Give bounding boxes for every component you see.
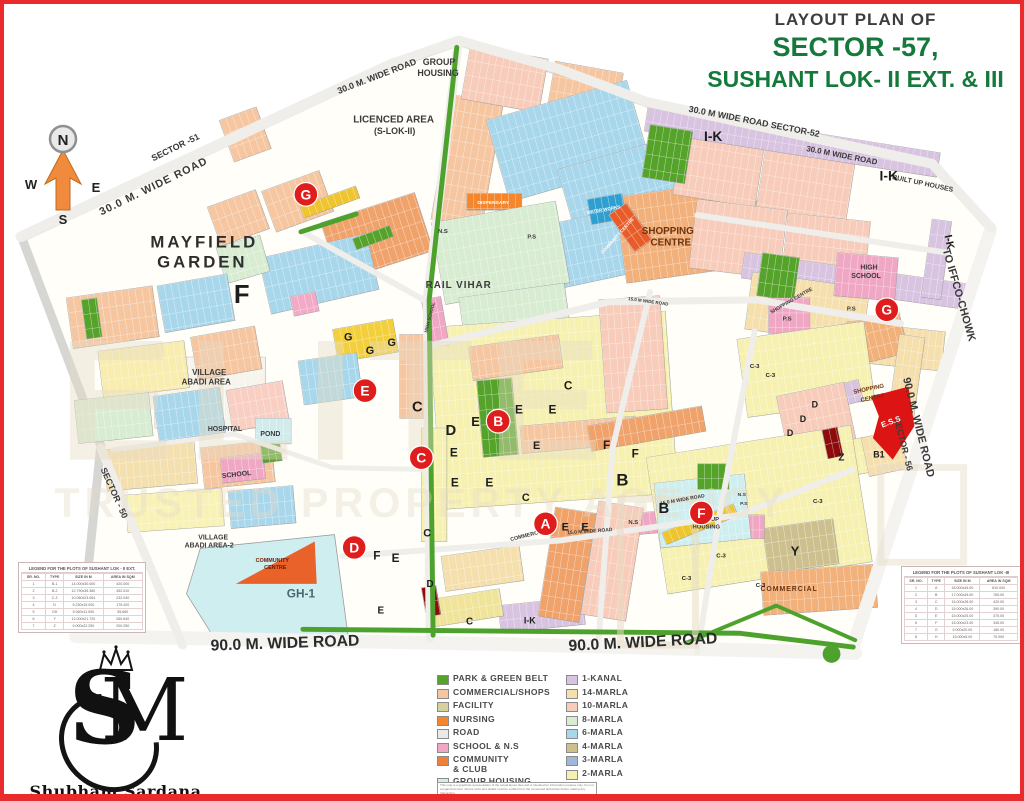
table-row: 7Z9.000x22.250200.250 xyxy=(22,623,143,630)
legend-label: COMMUNITY & CLUB xyxy=(453,755,509,775)
legend-item: 8-MARLA xyxy=(566,715,628,726)
table-cell: G xyxy=(928,627,945,634)
table-cell: GH xyxy=(46,609,64,616)
table-row: 6Y12.000x21.720260.640 xyxy=(22,616,143,623)
watermark-text: ELITE xyxy=(58,304,616,497)
block-letter: I-K xyxy=(704,129,722,144)
title-kicker: LAYOUT PLAN OF xyxy=(703,10,1008,30)
legend-swatch xyxy=(566,716,578,726)
block-letter: C xyxy=(466,616,473,627)
table-cell: 12.790x35.380 xyxy=(64,588,103,595)
table-row: 4D15.000x26.00390.00 xyxy=(905,606,1018,613)
title-sector: SECTOR -57, xyxy=(703,32,1008,63)
map-label: ABADI AREA-2 xyxy=(185,542,234,549)
table-cell: 14.000x30.000 xyxy=(64,581,103,588)
table-cell: 6 xyxy=(905,620,928,627)
legend-label: ROAD xyxy=(453,728,480,738)
table-cell: 10.060x23.064 xyxy=(64,595,103,602)
section-marker-g: G xyxy=(294,183,318,207)
map-label: COMMERCIAL xyxy=(760,586,817,593)
table-cell: 420.00 xyxy=(980,599,1018,606)
monogram: S M xyxy=(41,670,191,782)
section-marker-a: A xyxy=(534,512,558,536)
table-cell: 4 xyxy=(22,602,46,609)
table-cell: 9.000x22.250 xyxy=(64,623,103,630)
block-letter: C xyxy=(564,379,573,393)
map-label: HIGH xyxy=(860,264,877,271)
legend-swatch xyxy=(437,689,449,699)
legend-label: 10-MARLA xyxy=(582,701,628,711)
legend-swatch xyxy=(437,729,449,739)
table-row: 5E15.000x25.00375.00 xyxy=(905,613,1018,620)
group-housing-gh1-area xyxy=(187,535,349,642)
table-cell: 2 xyxy=(905,592,928,599)
table-row: 2B-212.790x35.380452.510 xyxy=(22,588,143,595)
section-marker-c: C xyxy=(409,446,433,470)
block-letter: C-3 xyxy=(766,373,776,379)
legend-item: 2-MARLA xyxy=(566,769,628,780)
table-cell: 75.000 xyxy=(980,634,1018,641)
block-letter: D xyxy=(446,423,457,439)
map-label: DISPENSARY xyxy=(477,200,510,206)
legend-label: 14-MARLA xyxy=(582,688,628,698)
legend-item: COMMUNITY & CLUB xyxy=(437,755,550,775)
svg-text:D: D xyxy=(349,540,359,555)
table-row: 7G9.000x20.00180.00 xyxy=(905,627,1018,634)
block-letter: E xyxy=(548,402,556,416)
table-header-cell: AREA IN SQM xyxy=(103,574,142,581)
plot-table-lok3: LEGEND FOR THE PLOTS OF SUSHANT LOK -III… xyxy=(901,566,1021,644)
table-cell: 12.000x21.720 xyxy=(64,616,103,623)
legend-swatch xyxy=(566,770,578,780)
map-label: HOSPITAL xyxy=(208,426,242,433)
legend-label: 8-MARLA xyxy=(582,715,623,725)
block-letter: C-3 xyxy=(682,576,692,582)
map-label: (S-LOK-II) xyxy=(374,126,415,136)
table-cell: B xyxy=(928,592,945,599)
legend-item: FACILITY xyxy=(437,701,550,712)
legend-label: PARK & GREEN BELT xyxy=(453,674,548,684)
block-letter: E xyxy=(533,440,540,452)
table-cell: E xyxy=(928,613,945,620)
block-letter: F xyxy=(373,548,380,562)
table-row: 6F15.000x23.00345.00 xyxy=(905,620,1018,627)
block-letter: E xyxy=(450,446,458,460)
table-cell: A xyxy=(928,585,945,592)
table-cell: 1 xyxy=(905,585,928,592)
svg-text:G: G xyxy=(881,303,892,318)
table-cell: 15.000x5.00 xyxy=(945,634,980,641)
table-header-cell: SIZE IN M xyxy=(64,574,103,581)
map-label: ABADI AREA xyxy=(182,378,231,387)
table-header-cell: SIZE IN M xyxy=(945,578,980,585)
legend-label: 3-MARLA xyxy=(582,755,623,765)
compass-s: S xyxy=(59,212,68,226)
table-cell: 420.000 xyxy=(103,581,142,588)
block-letter: E xyxy=(581,522,588,534)
legend-swatch xyxy=(566,743,578,753)
legend-swatch xyxy=(437,675,449,685)
table-cell: 180.00 xyxy=(980,627,1018,634)
map-label: P.S xyxy=(527,235,536,241)
legend-label: SCHOOL & N.S xyxy=(453,742,519,752)
legend-swatch xyxy=(566,729,578,739)
svg-text:G: G xyxy=(301,187,312,202)
legend-swatch xyxy=(566,702,578,712)
disclaimer-note: This map is a graphical representation o… xyxy=(437,782,597,798)
block-letter: E xyxy=(515,402,523,416)
table-cell: 765.00 xyxy=(980,592,1018,599)
svg-text:F: F xyxy=(697,506,705,521)
legend-swatch xyxy=(437,743,449,753)
table-cell: 6 xyxy=(22,616,46,623)
table-cell: 452.510 xyxy=(103,588,142,595)
block-letter: Z xyxy=(838,453,844,464)
map-legend: PARK & GREEN BELTCOMMERCIAL/SHOPSFACILIT… xyxy=(437,674,628,791)
block-letter: E xyxy=(392,551,400,565)
table-cell: 8 xyxy=(905,634,928,641)
block-letter: G xyxy=(366,345,374,357)
legend-item: 6-MARLA xyxy=(566,728,628,739)
table-row: 3C15.000x28.00420.00 xyxy=(905,599,1018,606)
legend-item: SCHOOL & N.S xyxy=(437,742,550,753)
map-label: N.S xyxy=(438,229,448,235)
block-letter: E xyxy=(451,475,459,489)
block-letter: F xyxy=(632,447,639,461)
green-belt-dot xyxy=(823,645,841,663)
plot-size-table: SR. NO.TYPESIZE IN MAREA IN SQM1A18.000x… xyxy=(904,577,1018,641)
title-block: LAYOUT PLAN OF SECTOR -57, SUSHANT LOK- … xyxy=(703,10,1008,93)
map-label: COMMUNITY xyxy=(256,558,290,564)
table-header-cell: TYPE xyxy=(928,578,945,585)
map-label: GROUP xyxy=(423,57,456,67)
table-cell: 18.000x45.00 xyxy=(945,585,980,592)
plot-size-table: SR. NO.TYPESIZE IN MAREA IN SQM1B-114.00… xyxy=(21,573,143,630)
block-letter: E xyxy=(485,475,493,489)
block-letter: D xyxy=(427,579,434,590)
table-cell: 55.660 xyxy=(103,609,142,616)
legend-label: COMMERCIAL/SHOPS xyxy=(453,688,550,698)
table-cell: 175.420 xyxy=(103,602,142,609)
legend-item: 4-MARLA xyxy=(566,742,628,753)
section-marker-g: G xyxy=(875,298,899,322)
block-letter: C-3 xyxy=(716,553,726,559)
table-cell: Y xyxy=(46,616,64,623)
legend-swatch xyxy=(566,689,578,699)
table-cell: 390.00 xyxy=(980,606,1018,613)
table-row: 3C-310.060x23.064232.040 xyxy=(22,595,143,602)
legend-label: NURSING xyxy=(453,715,495,725)
block-letter: F xyxy=(603,438,610,452)
legend-column: PARK & GREEN BELTCOMMERCIAL/SHOPSFACILIT… xyxy=(437,674,550,791)
table-cell: B-1 xyxy=(46,581,64,588)
table-cell: 232.040 xyxy=(103,595,142,602)
table-cell: 2 xyxy=(22,588,46,595)
table-cell: 15.000x26.00 xyxy=(945,606,980,613)
legend-item: COMMERCIAL/SHOPS xyxy=(437,688,550,699)
table-cell: D xyxy=(46,602,64,609)
table-title: LEGEND FOR THE PLOTS OF SUSHANT LOK - II… xyxy=(21,565,143,573)
legend-item: 1-KANAL xyxy=(566,674,628,685)
map-label: P.S xyxy=(847,307,856,313)
svg-text:C: C xyxy=(416,451,426,466)
legend-swatch xyxy=(437,702,449,712)
legend-item: PARK & GREEN BELT xyxy=(437,674,550,685)
table-cell: 345.00 xyxy=(980,620,1018,627)
svg-text:E: E xyxy=(360,384,369,399)
map-label: VILLAGE xyxy=(198,535,228,542)
brand-logo: S M Shubham Sardana xyxy=(28,644,203,801)
table-row: 1A18.000x45.00810.000 xyxy=(905,585,1018,592)
table-header-cell: TYPE xyxy=(46,574,64,581)
table-row: 2B17.000x45.00765.00 xyxy=(905,592,1018,599)
table-cell: 260.640 xyxy=(103,616,142,623)
compass-w: W xyxy=(25,177,38,192)
table-cell: B-2 xyxy=(46,588,64,595)
legend-item: 10-MARLA xyxy=(566,701,628,712)
map-label: P.S xyxy=(783,317,792,323)
compass-icon: N W E S xyxy=(24,122,104,226)
legend-column: 1-KANAL14-MARLA10-MARLA8-MARLA6-MARLA4-M… xyxy=(566,674,628,791)
table-cell: C-3 xyxy=(46,595,64,602)
block-letter: F xyxy=(234,281,250,309)
block-letter: C xyxy=(423,528,431,540)
table-cell: 5.060x11.000 xyxy=(64,609,103,616)
svg-text:B: B xyxy=(493,414,503,429)
block-letter: C xyxy=(522,492,530,504)
table-cell: Z xyxy=(46,623,64,630)
compass-n: N xyxy=(58,132,69,149)
legend-label: 1-KANAL xyxy=(582,674,622,684)
table-row: 4D9.230x19.000175.420 xyxy=(22,602,143,609)
block-letter: I-K xyxy=(880,169,898,184)
map-label: N.S xyxy=(628,520,638,526)
block-letter: E xyxy=(378,606,385,617)
section-marker-d: D xyxy=(342,536,366,560)
legend-swatch xyxy=(437,756,449,766)
section-marker-e: E xyxy=(353,379,377,403)
map-label: GH-1 xyxy=(287,587,316,601)
legend-label: 2-MARLA xyxy=(582,769,623,779)
legend-label: 4-MARLA xyxy=(582,742,623,752)
block-letter: D xyxy=(812,399,819,409)
map-label: HOUSING xyxy=(693,525,721,531)
map-label: SCHOOL xyxy=(851,273,880,280)
table-header-cell: SR. NO. xyxy=(905,578,928,585)
block-letter: E xyxy=(562,522,569,534)
monogram-m: M xyxy=(101,668,189,754)
block-letter: Y xyxy=(791,543,800,558)
block-letter: D xyxy=(787,428,794,438)
table-cell: C xyxy=(928,599,945,606)
map-label: GARDEN xyxy=(157,252,247,271)
table-cell: 7 xyxy=(905,627,928,634)
legend-swatch xyxy=(437,716,449,726)
table-cell: 5 xyxy=(905,613,928,620)
table-cell: 375.00 xyxy=(980,613,1018,620)
block-letter: G xyxy=(344,331,352,343)
legend-label: 6-MARLA xyxy=(582,728,623,738)
table-cell: 810.000 xyxy=(980,585,1018,592)
map-label: LICENCED AREA xyxy=(353,114,434,125)
map-label: SHOPPING xyxy=(642,226,694,237)
title-scheme: SUSHANT LOK- II EXT. & III xyxy=(703,66,1008,93)
map-label: N.S xyxy=(738,492,747,498)
svg-text:A: A xyxy=(541,517,551,532)
plot-zone xyxy=(763,519,840,574)
map-label: P.S xyxy=(740,501,748,507)
table-cell: 1 xyxy=(22,581,46,588)
table-cell: 15.000x23.00 xyxy=(945,620,980,627)
map-label: RAIL VIHAR xyxy=(426,280,492,291)
legend-swatch xyxy=(566,756,578,766)
map-label: HOUSING xyxy=(417,68,458,78)
plot-table-lok2-ext: LEGEND FOR THE PLOTS OF SUSHANT LOK - II… xyxy=(18,562,146,633)
table-cell: 7 xyxy=(22,623,46,630)
legend-item: 14-MARLA xyxy=(566,688,628,699)
block-letter: B xyxy=(659,501,670,517)
table-cell: F xyxy=(928,620,945,627)
table-cell: 9.000x20.00 xyxy=(945,627,980,634)
legend-label: FACILITY xyxy=(453,701,494,711)
table-cell: 4 xyxy=(905,606,928,613)
block-letter: B xyxy=(616,470,628,489)
block-letter: E xyxy=(471,414,480,429)
block-letter: C-3 xyxy=(750,364,760,370)
table-header-cell: SR. NO. xyxy=(22,574,46,581)
table-cell: 200.250 xyxy=(103,623,142,630)
legend-item: NURSING xyxy=(437,715,550,726)
compass-rose: N W E S xyxy=(24,122,104,231)
layout-plan-page: ELITETRUSTED PROPERTY AGENCYSECTOR -5130… xyxy=(0,0,1024,801)
block-letter: D xyxy=(800,414,807,424)
block-letter: C-3 xyxy=(813,499,823,505)
table-cell: 3 xyxy=(22,595,46,602)
block-letter: C xyxy=(412,399,423,415)
block-letter: B1 xyxy=(873,450,884,460)
table-row: 1B-114.000x30.000420.000 xyxy=(22,581,143,588)
table-title: LEGEND FOR THE PLOTS OF SUSHANT LOK -III xyxy=(904,569,1018,577)
legend-item: 3-MARLA xyxy=(566,755,628,766)
plot-zone xyxy=(642,124,693,183)
map-label: CENTRE xyxy=(651,238,692,249)
block-letter: I-K xyxy=(524,615,536,625)
section-marker-b: B xyxy=(486,409,510,433)
table-cell: D xyxy=(928,606,945,613)
legend-item: ROAD xyxy=(437,728,550,739)
map-label: VILLAGE xyxy=(192,368,226,377)
table-cell: H xyxy=(928,634,945,641)
table-cell: 15.000x25.00 xyxy=(945,613,980,620)
block-letter: C-3 xyxy=(756,583,766,589)
plot-zone xyxy=(756,253,799,301)
legend-swatch xyxy=(566,675,578,685)
block-letter: G xyxy=(387,337,395,349)
table-cell: 17.000x45.00 xyxy=(945,592,980,599)
compass-e: E xyxy=(92,180,101,195)
table-cell: 5 xyxy=(22,609,46,616)
table-cell: 15.000x28.00 xyxy=(945,599,980,606)
map-label: POND xyxy=(260,431,280,438)
table-row: 8H15.000x5.0075.000 xyxy=(905,634,1018,641)
compass-arrow-icon xyxy=(45,150,81,210)
map-label: MAYFIELD xyxy=(150,233,258,252)
section-marker-f: F xyxy=(690,501,714,525)
table-cell: 9.230x19.000 xyxy=(64,602,103,609)
table-row: 5GH5.060x11.00055.660 xyxy=(22,609,143,616)
map-label: CENTRE xyxy=(264,565,287,571)
table-header-cell: AREA IN SQM xyxy=(980,578,1018,585)
table-cell: 3 xyxy=(905,599,928,606)
